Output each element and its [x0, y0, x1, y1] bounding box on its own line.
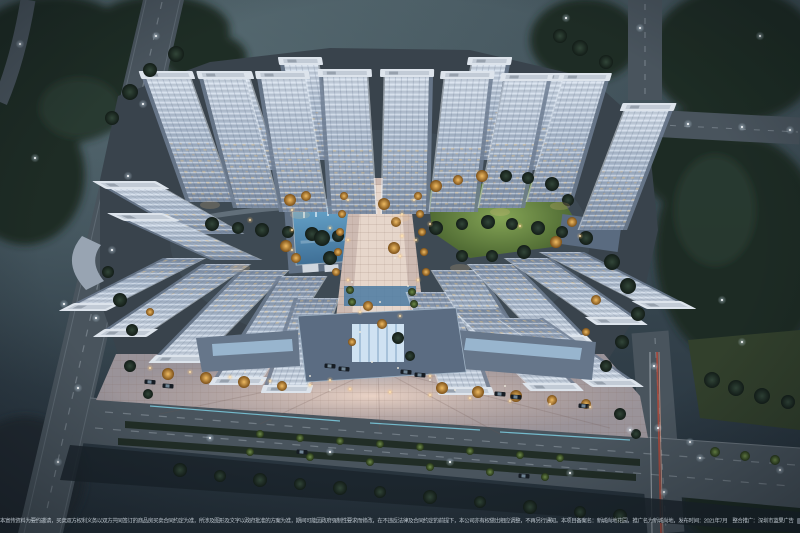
vignette [0, 0, 800, 533]
agency-logo-mark [797, 518, 800, 524]
disclaimer-line: 本宣传资料为要约邀请，买卖双方权利义务以双方共同签订的商品房买卖合同约定为准，所… [0, 519, 794, 525]
scene-canvas [0, 0, 800, 533]
disclaimer-text: 本宣传资料为要约邀请，买卖双方权利义务以双方共同签订的商品房买卖合同约定为准，所… [0, 518, 800, 526]
aerial-rendering: 本宣传资料为要约邀请，买卖双方权利义务以双方共同签订的商品房买卖合同约定为准，所… [0, 0, 800, 533]
